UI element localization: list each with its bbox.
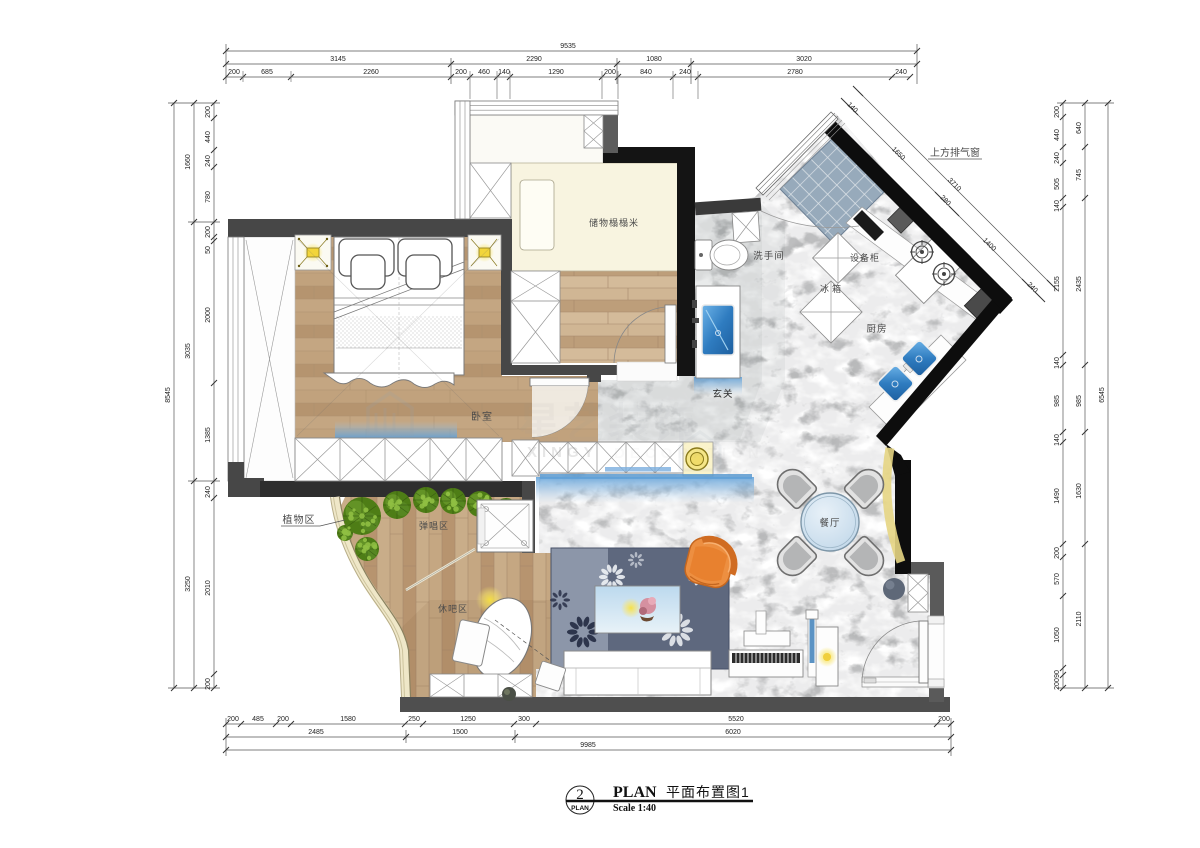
svg-text:90: 90 [1054, 670, 1061, 678]
svg-text:1050: 1050 [1054, 627, 1061, 643]
svg-text:6545: 6545 [1099, 387, 1106, 403]
svg-text:440: 440 [205, 131, 212, 143]
svg-text:50: 50 [205, 246, 212, 254]
svg-text:休吧区: 休吧区 [438, 603, 468, 614]
svg-text:200: 200 [277, 716, 289, 723]
svg-text:200: 200 [205, 226, 212, 238]
svg-text:840: 840 [640, 69, 652, 76]
svg-text:2485: 2485 [308, 729, 324, 736]
svg-text:685: 685 [261, 69, 273, 76]
svg-text:上方排气窗: 上方排气窗 [930, 146, 980, 159]
svg-text:2110: 2110 [1076, 611, 1083, 626]
svg-text:200: 200 [228, 69, 240, 76]
svg-text:985: 985 [1054, 395, 1061, 407]
svg-text:200: 200 [205, 106, 212, 118]
svg-text:3145: 3145 [330, 56, 346, 63]
svg-text:餐厅: 餐厅 [819, 517, 840, 529]
svg-text:250: 250 [408, 716, 420, 723]
svg-text:储物榻榻米: 储物榻榻米 [589, 217, 639, 228]
svg-text:PLAN: PLAN [613, 784, 657, 801]
svg-text:240: 240 [895, 69, 907, 76]
svg-text:3020: 3020 [796, 56, 812, 63]
svg-text:弹唱区: 弹唱区 [419, 520, 449, 531]
svg-text:2260: 2260 [363, 69, 379, 76]
svg-text:200: 200 [604, 69, 616, 76]
svg-text:设备柜: 设备柜 [850, 252, 880, 263]
svg-text:200: 200 [938, 716, 950, 723]
svg-text:植物区: 植物区 [283, 513, 316, 526]
svg-text:9535: 9535 [560, 43, 576, 50]
svg-text:240: 240 [1054, 152, 1061, 164]
svg-text:440: 440 [1054, 129, 1061, 141]
svg-text:240: 240 [205, 486, 212, 498]
svg-text:1080: 1080 [646, 56, 662, 63]
svg-text:745: 745 [1076, 169, 1083, 181]
svg-text:485: 485 [252, 716, 264, 723]
svg-text:200: 200 [1054, 678, 1061, 690]
svg-text:460: 460 [478, 69, 490, 76]
svg-text:200: 200 [205, 678, 212, 690]
svg-text:6020: 6020 [725, 729, 741, 736]
svg-text:505: 505 [1054, 178, 1061, 190]
svg-text:3035: 3035 [185, 343, 192, 359]
svg-text:140: 140 [1054, 434, 1061, 446]
svg-text:DECORATION: DECORATION [614, 445, 764, 462]
svg-text:200: 200 [455, 69, 467, 76]
svg-text:570: 570 [1054, 573, 1061, 585]
svg-text:140: 140 [1054, 200, 1061, 212]
svg-text:240: 240 [679, 69, 691, 76]
svg-text:星艺装饰: 星艺装饰 [518, 400, 698, 447]
svg-text:1490: 1490 [1054, 488, 1061, 504]
svg-text:2780: 2780 [787, 69, 803, 76]
svg-text:2155: 2155 [1054, 276, 1061, 292]
svg-text:200: 200 [227, 716, 239, 723]
svg-text:300: 300 [518, 716, 530, 723]
svg-text:985: 985 [1076, 395, 1083, 407]
svg-text:3250: 3250 [185, 576, 192, 592]
svg-text:9985: 9985 [580, 742, 596, 749]
svg-text:冰箱: 冰箱 [820, 283, 844, 294]
svg-text:200: 200 [1054, 547, 1061, 559]
svg-text:780: 780 [205, 191, 212, 203]
svg-text:Scale 1:40: Scale 1:40 [613, 803, 656, 814]
svg-text:5520: 5520 [728, 716, 744, 723]
svg-text:140: 140 [498, 69, 510, 76]
svg-text:1290: 1290 [548, 69, 564, 76]
svg-text:2000: 2000 [205, 307, 212, 323]
svg-text:1250: 1250 [460, 716, 476, 723]
svg-text:洗手间: 洗手间 [753, 250, 785, 262]
svg-text:厨房: 厨房 [866, 323, 887, 335]
svg-text:1385: 1385 [205, 427, 212, 443]
svg-text:200: 200 [1054, 106, 1061, 118]
svg-text:2290: 2290 [526, 56, 542, 63]
svg-text:玄关: 玄关 [712, 388, 733, 400]
svg-text:2010: 2010 [205, 580, 212, 596]
svg-text:2435: 2435 [1076, 276, 1083, 292]
svg-text:PLAN: PLAN [571, 805, 589, 812]
svg-text:卧室: 卧室 [471, 410, 493, 423]
svg-text:平面布置图1: 平面布置图1 [666, 784, 750, 800]
svg-text:140: 140 [1054, 357, 1061, 369]
svg-text:1660: 1660 [185, 154, 192, 170]
svg-text:8545: 8545 [165, 387, 172, 403]
svg-text:1630: 1630 [1076, 483, 1083, 499]
svg-text:640: 640 [1076, 122, 1083, 134]
svg-text:1580: 1580 [340, 716, 356, 723]
svg-text:1500: 1500 [452, 729, 468, 736]
svg-text:240: 240 [205, 155, 212, 167]
